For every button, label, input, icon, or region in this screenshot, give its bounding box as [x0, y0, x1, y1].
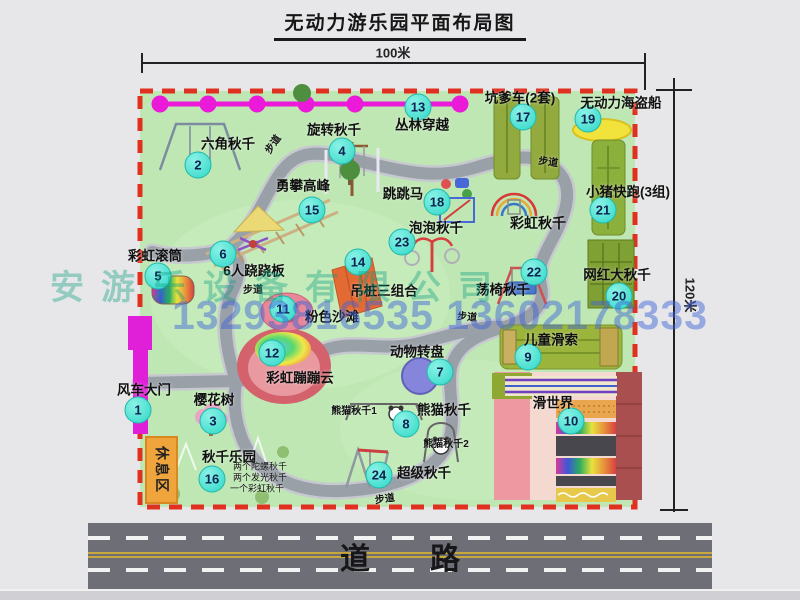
- map-marker-4: 4: [329, 138, 356, 165]
- small-label: 一个彩虹秋千: [230, 485, 284, 494]
- phone-watermark: 13293816535 13602178333: [172, 292, 708, 339]
- map-marker-18: 18: [424, 189, 451, 216]
- rest-area-label: 休息区: [152, 446, 172, 494]
- park-layout-image: 无动力游乐园平面布局图: [0, 0, 800, 600]
- map-marker-3: 3: [200, 408, 227, 435]
- map-marker-2: 2: [185, 152, 212, 179]
- map-marker-9: 9: [515, 344, 542, 371]
- map-marker-10: 10: [558, 408, 585, 435]
- map-label-7: 动物转盘: [390, 345, 444, 359]
- map-label-23: 泡泡秋千: [409, 221, 463, 235]
- small-label: 两个发光秋千: [233, 474, 287, 483]
- map-marker-7: 7: [427, 359, 454, 386]
- map-marker-1: 1: [125, 397, 152, 424]
- map-marker-8: 8: [393, 411, 420, 438]
- map-label-17: 坑爹车(2套): [485, 91, 556, 105]
- map-label-10: 滑世界: [533, 396, 574, 410]
- map-label-2: 六角秋千: [201, 137, 255, 151]
- map-label-4: 旋转秋千: [307, 123, 361, 137]
- rest-area: 休息区: [145, 436, 178, 504]
- map-label-24: 超级秋千: [397, 466, 451, 480]
- map-label-13: 丛林穿越: [395, 118, 449, 132]
- map-marker-17: 17: [510, 104, 537, 131]
- road: 道 路: [88, 523, 712, 589]
- map-label-15: 勇攀高峰: [276, 179, 330, 193]
- small-label: 熊猫秋千2: [423, 440, 469, 450]
- map-label-8: 熊猫秋千: [417, 403, 471, 417]
- map-label-21: 小猪快跑(3组): [586, 185, 670, 199]
- width-dimension-label: 100米: [376, 43, 411, 62]
- map-marker-12: 12: [259, 340, 286, 367]
- map-label-1: 风车大门: [117, 383, 171, 397]
- small-label: 熊猫秋千1: [331, 407, 377, 417]
- map-label-3: 樱花树: [194, 393, 235, 407]
- rainbow-bounce-cloud: [237, 328, 331, 404]
- map-label-20: 网红大秋千: [583, 268, 651, 282]
- map-marker-16: 16: [199, 466, 226, 493]
- map-label-19: 无动力海盗船: [581, 96, 662, 110]
- curb-strip: [0, 589, 800, 600]
- slide-world-zone: [492, 372, 642, 502]
- map-label-12: 彩虹蹦蹦云: [266, 371, 334, 385]
- map-marker-24: 24: [366, 462, 393, 489]
- road-label: 道 路: [340, 534, 460, 578]
- small-label: 彩虹秋千: [510, 216, 566, 230]
- map-label-18: 跳跳马: [383, 187, 424, 201]
- small-label: 两个陀螺秋千: [233, 463, 287, 472]
- map-marker-15: 15: [299, 197, 326, 224]
- map-marker-21: 21: [590, 197, 617, 224]
